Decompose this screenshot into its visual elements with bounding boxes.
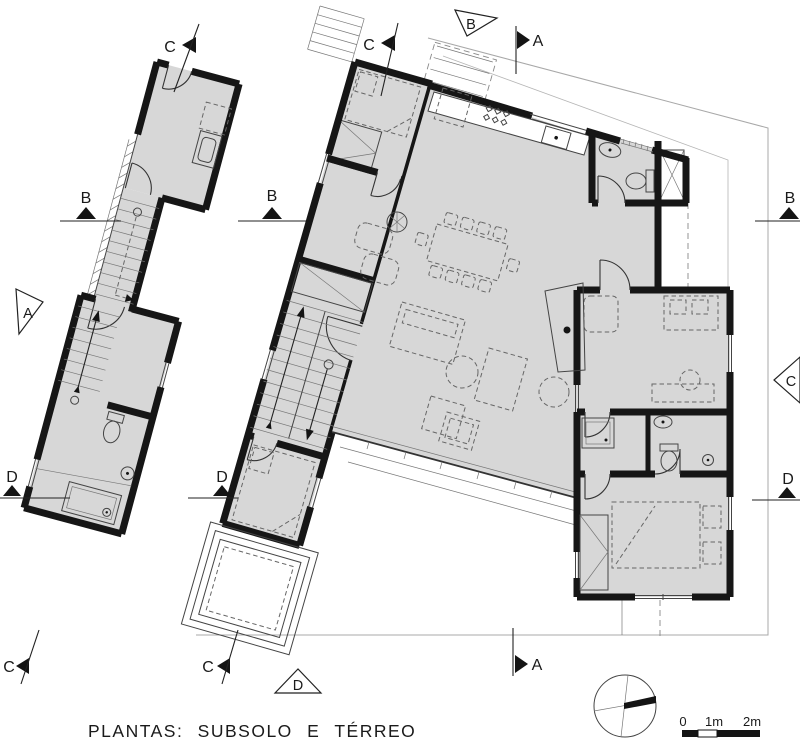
section-arrow-icon (517, 31, 530, 49)
marker-letter: D (6, 469, 18, 486)
exterior-stair-upper (308, 6, 365, 62)
marker-letter: B (81, 190, 92, 207)
section-arrow-icon (76, 207, 96, 219)
north-compass-icon (594, 675, 656, 737)
marker-letter: A (23, 306, 33, 322)
marker-letter: C (202, 659, 214, 676)
section-marker-b-mid: B (238, 188, 306, 221)
section-marker-b-right: B (755, 190, 800, 221)
marker-letter: C (164, 39, 176, 56)
drawing-title: PLANTAS: SUBSOLO E TÉRREO (88, 721, 416, 741)
section-marker-c-bottom-left: C (3, 630, 39, 684)
floor-plan-sheet: C C B A B B B (0, 0, 800, 741)
section-marker-a-left: A (16, 289, 43, 334)
triangle-marker-icon (455, 10, 497, 36)
marker-letter: C (3, 659, 15, 676)
section-marker-d-bottom: D (275, 669, 321, 694)
section-arrow-icon (3, 485, 21, 496)
marker-letter: A (533, 33, 544, 50)
section-marker-b-top: B (455, 10, 497, 36)
marker-letter: D (293, 678, 303, 694)
marker-letter: B (466, 17, 476, 33)
section-arrow-icon (515, 655, 528, 673)
section-arrow-icon (217, 658, 230, 674)
bathrooms-band (577, 412, 730, 474)
section-marker-b-left: B (60, 190, 121, 221)
floor-plan-drawing: C C B A B B B (0, 0, 800, 741)
section-arrow-icon (262, 207, 282, 219)
marker-letter: C (786, 374, 796, 390)
scale-label-1m: 1m (705, 714, 723, 729)
section-marker-d-right: D (752, 471, 800, 500)
basement-plan (23, 58, 244, 534)
section-marker-c-right: C (774, 357, 800, 403)
marker-letter: A (532, 657, 543, 674)
marker-letter: C (363, 37, 375, 54)
marker-letter: B (267, 188, 278, 205)
master-bedroom (577, 474, 730, 597)
bathroom-top (586, 131, 688, 203)
scale-label-0: 0 (679, 714, 686, 729)
marker-letter: B (785, 190, 796, 207)
scale-bar: 0 1m 2m (679, 714, 761, 737)
marker-letter: D (216, 469, 228, 486)
scale-label-2m: 2m (743, 714, 761, 729)
marker-letter: D (782, 471, 794, 488)
section-arrow-icon (213, 485, 231, 496)
right-wing (576, 260, 732, 600)
office-room (577, 290, 730, 412)
section-arrow-icon (779, 207, 799, 219)
section-marker-a-top: A (516, 26, 544, 74)
section-arrow-icon (778, 487, 796, 498)
